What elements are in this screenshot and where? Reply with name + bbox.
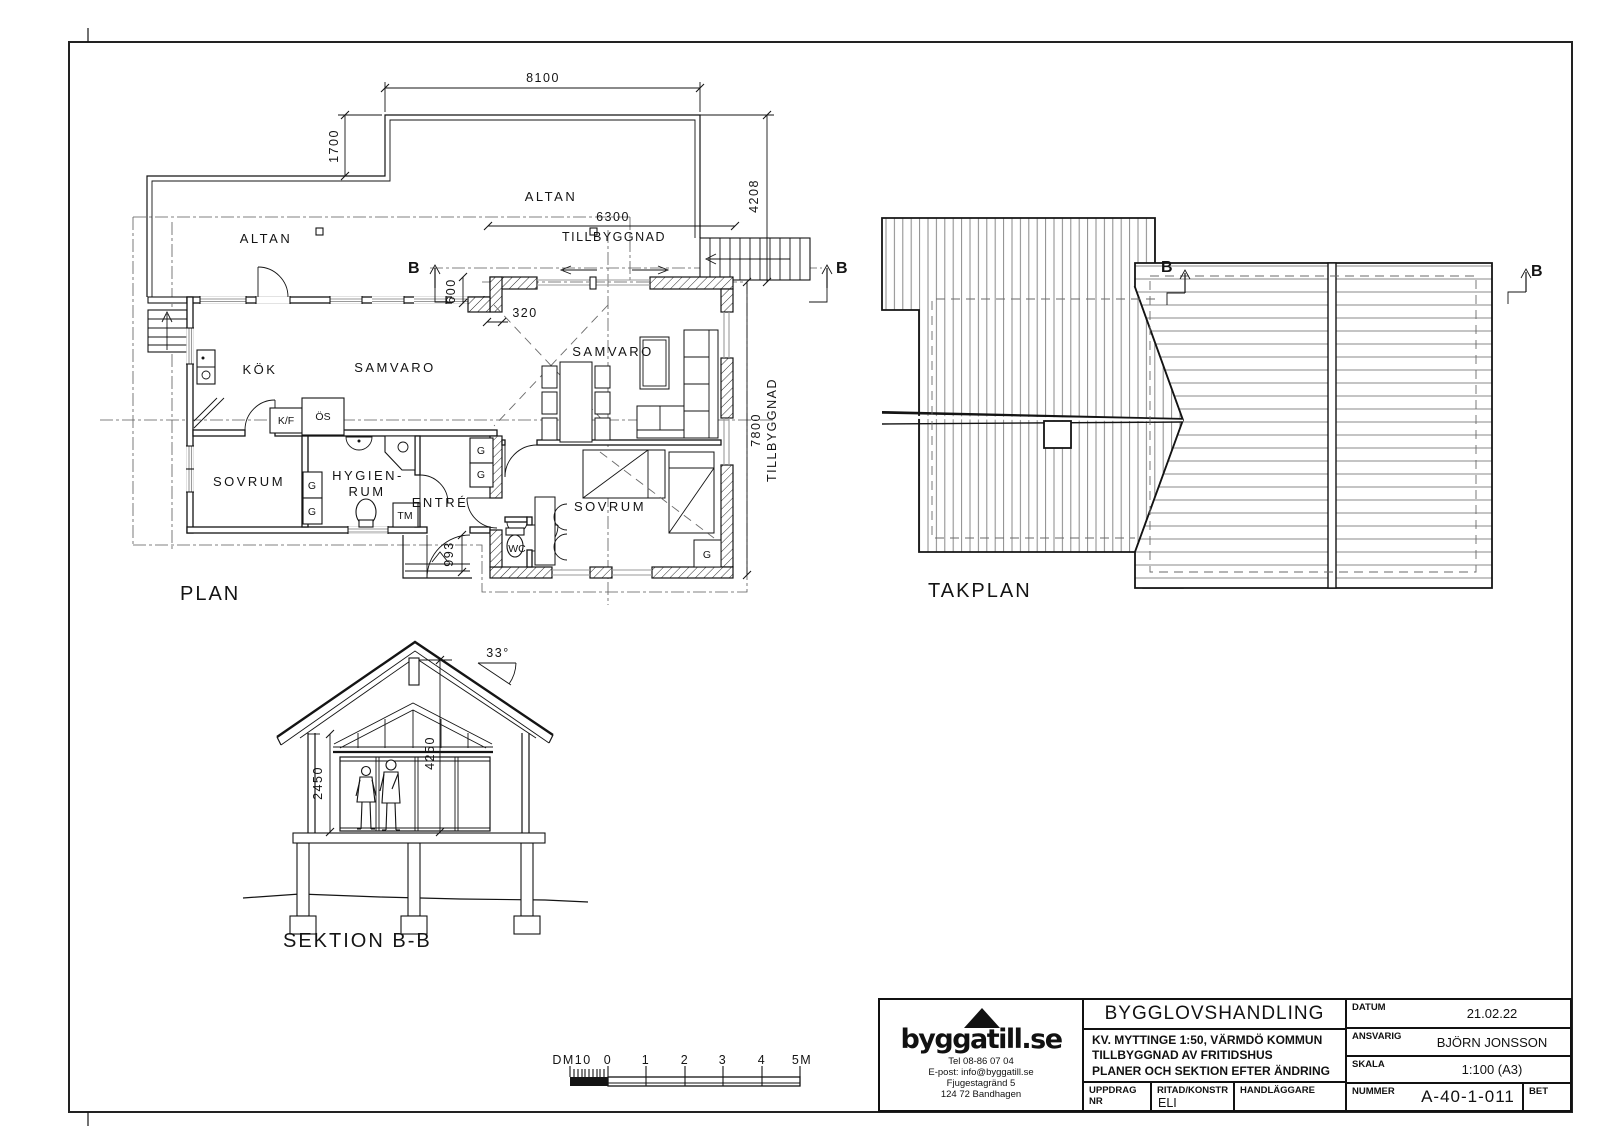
section-marker-letter: B xyxy=(1161,259,1173,276)
drawing-canvas: ALTAN ALTAN xyxy=(0,0,1598,1139)
ridge-extension xyxy=(1328,263,1336,588)
room-label-hygien-2: RUM xyxy=(348,484,385,499)
datum-value: 21.02.22 xyxy=(1414,1000,1570,1027)
dim-1700: 1700 xyxy=(327,129,341,163)
room-label-sovrum-ext: SOVRUM xyxy=(574,499,646,514)
person-figure xyxy=(356,767,376,830)
section-walls xyxy=(308,733,529,833)
dim-7800-caption: TILLBYGGNAD xyxy=(765,378,779,482)
dim-320: 320 xyxy=(512,306,537,320)
fixture-kf-label: K/F xyxy=(278,415,294,427)
uppdrag-label: UPPDRAG NR xyxy=(1084,1083,1150,1107)
wardrobe-label: G xyxy=(308,506,316,518)
floor-plan: ALTAN ALTAN xyxy=(100,71,848,605)
section-drawing: 2450 4250 33° SEKTION B-B xyxy=(243,642,588,952)
wardrobe-label: G xyxy=(477,445,485,457)
dim-6300-caption: TILLBYGGNAD xyxy=(562,230,666,244)
company-city: 124 72 Bandhagen xyxy=(880,1089,1082,1100)
roof-logo-icon xyxy=(964,1008,1000,1028)
section-marker-letter: B xyxy=(1531,263,1543,280)
ansvarig-label: ANSVARIG xyxy=(1347,1029,1414,1055)
fixture-os-label: ÖS xyxy=(315,411,330,423)
drawing-sheet: ALTAN ALTAN xyxy=(0,0,1598,1139)
skala-value: 1:100 (A3) xyxy=(1414,1057,1570,1082)
deck-door xyxy=(256,267,290,304)
roof-extension xyxy=(1135,263,1492,588)
room-label-wc: WC xyxy=(508,543,526,555)
deck-outline xyxy=(147,115,700,297)
company-street: Fjugestagränd 5 xyxy=(880,1078,1082,1089)
fixtures: K/F ÖS G G TM G G xyxy=(194,350,527,557)
dim-8100: 8100 xyxy=(526,71,560,85)
room-label-kok: KÖK xyxy=(243,362,278,377)
ansvarig-value: BJÖRN JONSSON xyxy=(1414,1029,1570,1055)
chimney xyxy=(1044,421,1071,448)
company-email: E-post: info@byggatill.se xyxy=(880,1067,1082,1078)
section-marker-letter: B xyxy=(836,260,848,277)
dim-4208: 4208 xyxy=(747,179,761,213)
roof-plan-title: TAKPLAN xyxy=(928,580,1032,602)
company-phone: Tel 08-86 07 04 xyxy=(880,1056,1082,1067)
project-line-2: TILLBYGGNAD AV FRITIDSHUS xyxy=(1092,1048,1345,1064)
scale-label-dm: DM10 xyxy=(552,1053,591,1067)
scale-label-2: 2 xyxy=(681,1053,689,1067)
room-label-hygien-1: HYGIEN- xyxy=(332,468,404,483)
altan-label-east: ALTAN xyxy=(525,189,577,204)
scale-label-1: 1 xyxy=(642,1053,650,1067)
roof-angle: 33° xyxy=(486,646,509,660)
title-block: byggatill.se Tel 08-86 07 04 E-post: inf… xyxy=(878,998,1572,1112)
company-logo-text: byggatill.se xyxy=(880,1027,1082,1053)
company-logo-cell: byggatill.se Tel 08-86 07 04 E-post: inf… xyxy=(880,1000,1084,1110)
scale-label-4: 4 xyxy=(758,1053,766,1067)
dim-2450: 2450 xyxy=(311,766,325,800)
scale-bar: DM10 0 1 2 3 4 5M xyxy=(552,1053,812,1086)
nummer-label: NUMMER xyxy=(1347,1084,1414,1110)
drawing-number: A-40-1-011 xyxy=(1414,1084,1522,1110)
handlaggare-label: HANDLÄGGARE xyxy=(1235,1083,1345,1096)
dim-7800: 7800 xyxy=(749,413,763,447)
document-type: BYGGLOVSHANDLING xyxy=(1084,1000,1345,1030)
ritad-label: RITAD/KONSTR xyxy=(1152,1083,1233,1096)
dim-6300: 6300 xyxy=(596,210,630,224)
gable-window xyxy=(333,703,493,752)
section-marker-east: B xyxy=(809,260,848,302)
bet-label: BET xyxy=(1524,1084,1570,1097)
wardrobe-label: G xyxy=(703,549,711,561)
skala-label: SKALA xyxy=(1347,1057,1414,1082)
room-label-entre: ENTRÉ xyxy=(412,495,469,510)
scale-label-3: 3 xyxy=(719,1053,727,1067)
fixture-tm-label: TM xyxy=(397,510,412,522)
scale-label-0: 0 xyxy=(604,1053,612,1067)
scale-bar-graphic xyxy=(570,1066,800,1086)
wardrobe-label: G xyxy=(477,469,485,481)
wardrobe-label: G xyxy=(308,480,316,492)
section-roof xyxy=(277,642,553,745)
altan-label-west: ALTAN xyxy=(240,231,292,246)
project-line-1: KV. MYTTINGE 1:50, VÄRMDÖ KOMMUN xyxy=(1092,1033,1345,1049)
room-label-sovrum: SOVRUM xyxy=(213,474,285,489)
foundation-posts xyxy=(290,843,540,934)
roof-plan: B B TAKPLAN xyxy=(882,218,1543,602)
roof-section-marker-east: B xyxy=(1508,263,1543,304)
project-line-3: PLANER OCH SEKTION EFTER ÄNDRING xyxy=(1092,1064,1345,1080)
dim-4250: 4250 xyxy=(423,736,437,770)
room-label-samvaro-ext: SAMVARO xyxy=(572,344,654,359)
ritad-value: ELI xyxy=(1152,1096,1233,1110)
datum-label: DATUM xyxy=(1347,1000,1414,1027)
floor-slab xyxy=(293,833,545,843)
section-marker-letter: B xyxy=(408,260,420,277)
extension-furniture: G xyxy=(535,330,721,567)
plan-title: PLAN xyxy=(180,583,240,605)
section-title: SEKTION B-B xyxy=(283,930,432,952)
deck-stairs-east xyxy=(700,238,810,280)
scale-label-5m: 5M xyxy=(792,1053,812,1067)
deck-stairs-west xyxy=(148,297,187,352)
person-figure xyxy=(380,760,400,830)
dim-600: 600 xyxy=(444,278,458,303)
room-label-samvaro: SAMVARO xyxy=(354,360,436,375)
dim-993: 993 xyxy=(442,541,456,566)
